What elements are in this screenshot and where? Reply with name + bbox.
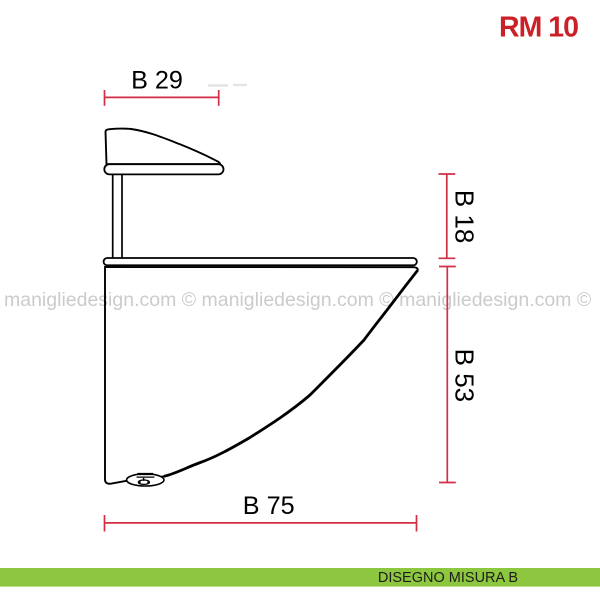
svg-text:RM 10: RM 10	[499, 12, 578, 44]
svg-text:B 29: B 29	[131, 67, 183, 95]
svg-text:B 18: B 18	[450, 190, 480, 244]
svg-text:DISEGNO MISURA B: DISEGNO MISURA B	[378, 570, 518, 586]
svg-text:manigliedesign.com © maniglied: manigliedesign.com © manigliedesign.com …	[4, 289, 592, 311]
svg-text:B 75: B 75	[243, 492, 295, 520]
svg-text:B 53: B 53	[450, 349, 480, 403]
